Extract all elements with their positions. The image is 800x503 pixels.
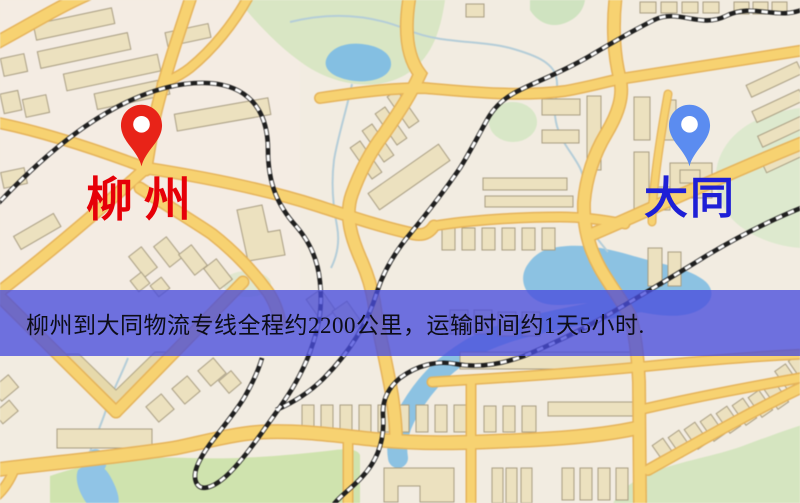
- map-image[interactable]: [0, 0, 800, 503]
- location-pin-icon-liuzhou: [119, 103, 164, 169]
- info-banner: 柳州到大同物流专线全程约2200公里，运输时间约1天5小时.: [0, 290, 800, 356]
- city-label-datong: 大同: [644, 177, 736, 221]
- location-pin-icon-datong: [667, 103, 712, 169]
- city-label-liuzhou: 柳州: [86, 178, 202, 225]
- route-info-text: 柳州到大同物流专线全程约2200公里，运输时间约1天5小时.: [26, 306, 645, 340]
- map-screenshot: 柳州到大同物流专线全程约2200公里，运输时间约1天5小时. 柳州 大同: [0, 0, 800, 503]
